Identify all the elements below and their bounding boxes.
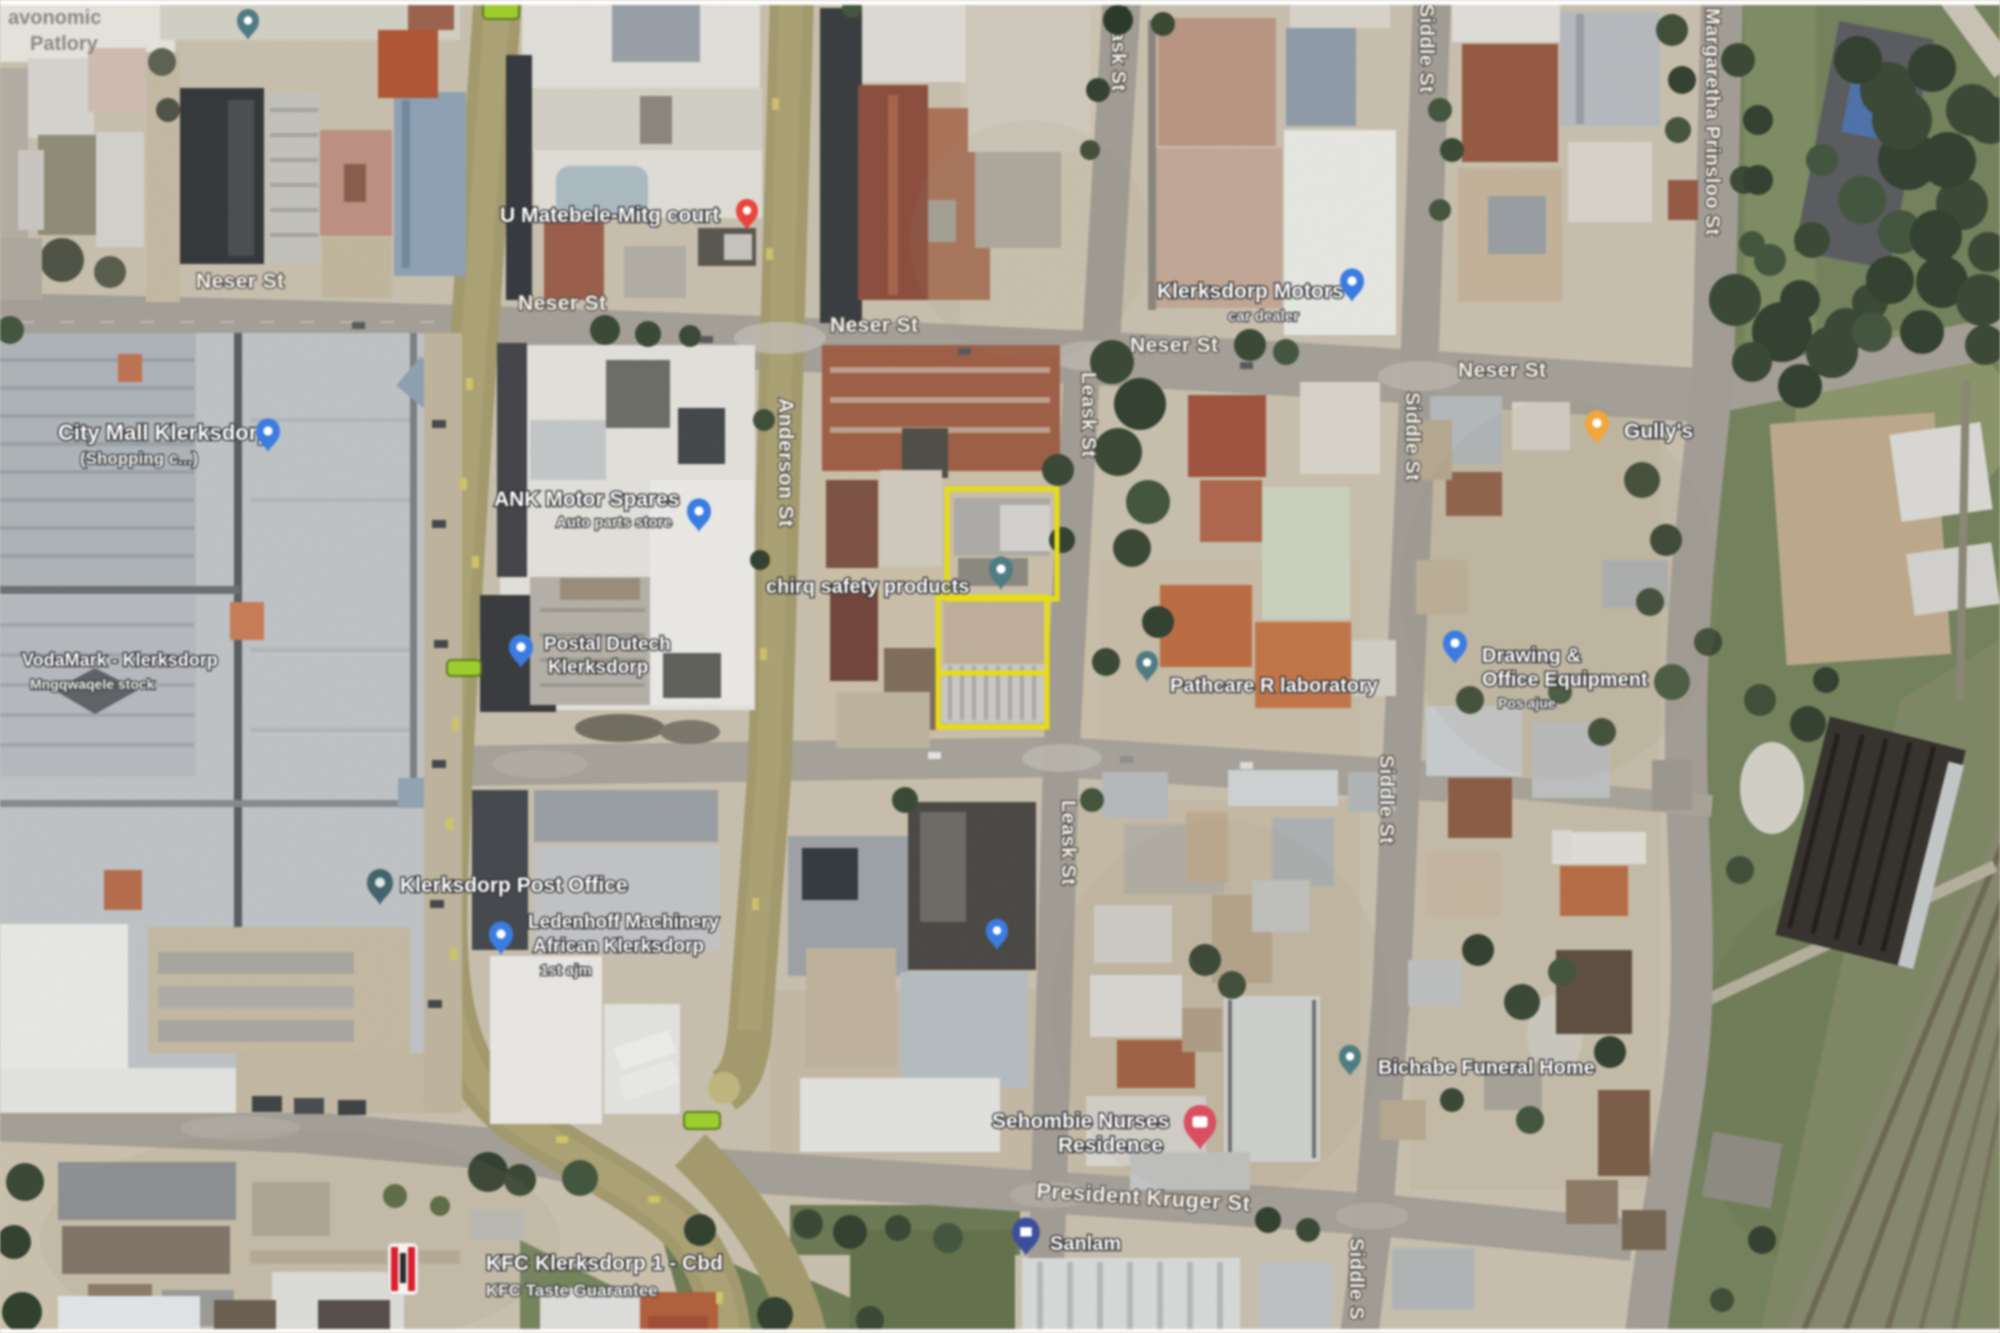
svg-text:Leask St: Leask St [1057, 800, 1079, 885]
svg-text:Leask St: Leask St [1077, 372, 1099, 457]
svg-text:Siddle S: Siddle S [1345, 1238, 1367, 1320]
svg-text:Neser St: Neser St [518, 292, 606, 315]
svg-text:Ledenhoff Machinery: Ledenhoff Machinery [528, 912, 720, 933]
svg-text:Sanlam: Sanlam [1050, 1233, 1121, 1255]
svg-text:Residence: Residence [1058, 1134, 1163, 1157]
svg-text:KFC Klerksdorp 1 - Cbd: KFC Klerksdorp 1 - Cbd [486, 1252, 723, 1275]
svg-text:ANK Motor Spares: ANK Motor Spares [494, 488, 680, 511]
svg-text:Gully's: Gully's [1624, 420, 1693, 443]
svg-text:Neser St: Neser St [196, 270, 284, 293]
svg-text:Bichabe Funeral Home: Bichabe Funeral Home [1378, 1057, 1595, 1079]
svg-text:Mngqwaqele stock: Mngqwaqele stock [30, 676, 155, 692]
svg-text:Neser St: Neser St [1130, 334, 1218, 357]
svg-text:Sehombie Nurses: Sehombie Nurses [992, 1110, 1169, 1133]
svg-text:Margaretha Prinsloo St: Margaretha Prinsloo St [1701, 8, 1723, 236]
svg-text:Pos ajue: Pos ajue [1498, 695, 1556, 711]
svg-text:Office Equipment: Office Equipment [1482, 669, 1648, 691]
svg-text:U Matebele-Mitg court: U Matebele-Mitg court [500, 204, 719, 227]
svg-text:Auto parts store: Auto parts store [556, 514, 672, 531]
svg-text:VodaMark - Klerksdorp: VodaMark - Klerksdorp [22, 650, 218, 670]
svg-text:Siddle St: Siddle St [1401, 392, 1423, 481]
svg-text:avonomic: avonomic [8, 7, 101, 29]
svg-text:KFC Taste Guarantee: KFC Taste Guarantee [486, 1281, 658, 1300]
svg-text:Neser St: Neser St [830, 314, 918, 337]
svg-text:Siddle St: Siddle St [1375, 755, 1397, 844]
svg-text:Neser St: Neser St [1458, 359, 1546, 382]
svg-text:City Mall Klerksdorp: City Mall Klerksdorp [58, 420, 271, 445]
svg-text:Patlory: Patlory [30, 33, 99, 55]
svg-text:Klerksdorp Motors: Klerksdorp Motors [1157, 280, 1344, 303]
svg-text:1st ajm: 1st ajm [540, 962, 592, 979]
svg-text:Pathcare R laboratory: Pathcare R laboratory [1170, 675, 1379, 697]
svg-text:Klerksdorp Post Office: Klerksdorp Post Office [400, 874, 628, 897]
svg-text:chirq safety products: chirq safety products [766, 576, 969, 598]
svg-text:car dealer: car dealer [1228, 308, 1299, 325]
svg-text:Klerksdorp: Klerksdorp [548, 657, 648, 678]
svg-text:African Klerksdorp: African Klerksdorp [533, 936, 704, 957]
svg-text:Siddle St: Siddle St [1415, 4, 1437, 93]
svg-text:Postal Dutech: Postal Dutech [544, 634, 671, 655]
svg-text:Anderson St: Anderson St [774, 398, 797, 527]
svg-text:Drawing &: Drawing & [1482, 645, 1581, 667]
svg-text:(Shopping c...): (Shopping c...) [80, 449, 198, 468]
